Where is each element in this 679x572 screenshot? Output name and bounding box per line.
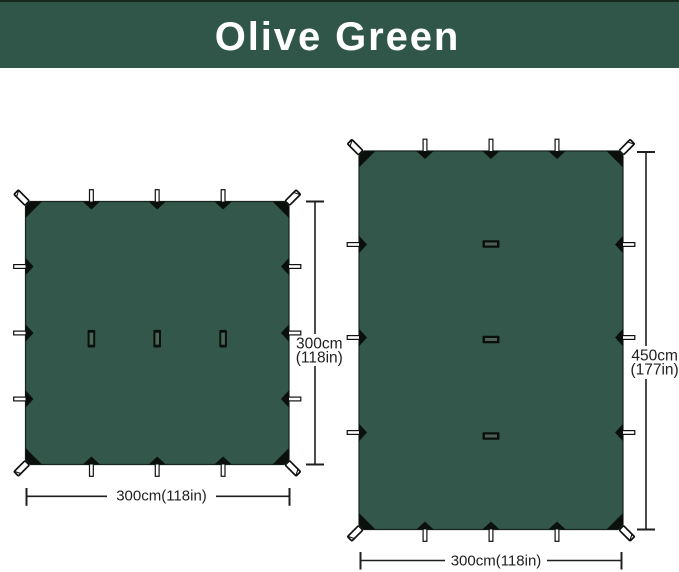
svg-text:300cm(118in): 300cm(118in) bbox=[116, 487, 207, 504]
svg-text:300cm(118in): 300cm(118in) bbox=[451, 552, 542, 569]
svg-text:(177in): (177in) bbox=[630, 362, 678, 379]
svg-text:Olive Green: Olive Green bbox=[215, 15, 460, 59]
svg-text:(118in): (118in) bbox=[296, 349, 343, 366]
